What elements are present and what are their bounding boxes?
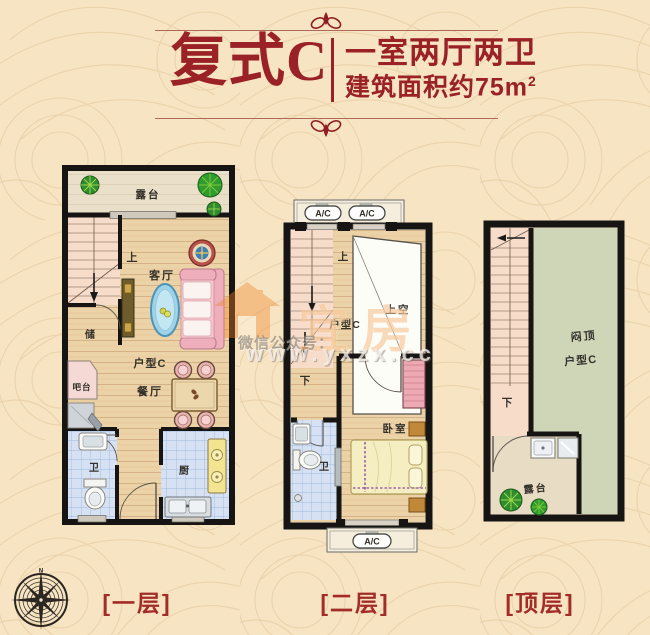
stove — [208, 439, 226, 493]
compass-north-label: N — [39, 569, 43, 575]
title-divider — [331, 38, 334, 102]
floor3-stair-down-label: 下 — [502, 397, 513, 409]
wall-clock-decor-icon — [189, 240, 215, 266]
floor2-ac-panel-bottom: A/C — [327, 528, 417, 552]
compass-rose-icon: N — [8, 566, 74, 632]
nightstand-bottom — [409, 498, 425, 512]
floor1-storage-label: 储 — [84, 328, 95, 341]
floor2-unit-label: 户型C — [328, 318, 361, 331]
floor2-caption: [二层] — [295, 584, 415, 618]
wardrobe — [403, 360, 425, 408]
ac-unit-label-3: A/C — [364, 537, 380, 547]
floor1-dining-label: 餐厅 — [136, 384, 163, 398]
rug — [151, 284, 179, 336]
floor1-caption: [一层] — [77, 584, 197, 618]
floor3-plant-right-icon — [531, 499, 547, 515]
floor3-plan: 下 闷顶 户型C 露台 — [483, 220, 625, 522]
page-title: 复式C — [170, 33, 328, 90]
floor1-terrace-label: 露台 — [136, 188, 161, 201]
floor2-stair-down-label: 下 — [300, 375, 311, 387]
bed — [351, 440, 427, 494]
floor1-plan: 露台 上 客厅 储 吧台 户型C 餐厅 卫 厨 — [62, 165, 235, 525]
floor1-bar-label: 吧台 — [72, 382, 91, 392]
floor3-caption: [顶层] — [480, 584, 600, 618]
toilet — [84, 479, 106, 509]
floor3-plant-left-icon — [500, 489, 522, 511]
area-text: 建筑面积约75m — [345, 73, 528, 101]
nightstand-top — [409, 422, 425, 436]
bedroom-sliding-door — [335, 448, 341, 486]
bathroom-sink — [79, 433, 107, 450]
area-description: 建筑面积约75m2 — [345, 74, 537, 100]
top-ornament-icon — [305, 10, 347, 30]
floor2-toilet — [293, 450, 321, 470]
floorplan-poster: 复式C 一室两厅两卫 建筑面积约75m2 — [0, 0, 650, 635]
floor2-bath-sink — [293, 424, 310, 444]
floor2-bath-label: 卫 — [319, 461, 329, 473]
floor1-hall-floor — [117, 429, 161, 519]
floor1-bath-label: 卫 — [89, 462, 99, 474]
floor2-stair-up-label: 上 — [338, 250, 349, 263]
sofa — [180, 269, 224, 349]
floor1-stair-up-label: 上 — [127, 250, 138, 264]
floor1-bath-window — [78, 516, 106, 523]
tv-cabinet — [122, 279, 134, 337]
floor1-plant-left-icon — [81, 176, 99, 194]
floor2-void-label: 上空 — [386, 303, 411, 316]
floor1-living-label: 客厅 — [148, 268, 175, 282]
layout-description: 一室两厅两卫 — [345, 37, 537, 68]
kitchen-sink — [165, 497, 211, 517]
area-superscript: 2 — [528, 73, 537, 89]
bottom-ornament-icon — [305, 119, 347, 139]
bar-counter — [68, 361, 102, 431]
terrace-appliance — [558, 438, 578, 458]
floor2-bedroom-label: 卧室 — [383, 422, 408, 435]
floor-drain-icon — [295, 495, 302, 502]
floor2-plan: A/C A/C — [283, 198, 433, 555]
ac-unit-label-1: A/C — [315, 209, 331, 219]
floor1-unit-label: 户型C — [134, 356, 167, 370]
ac-unit-label-2: A/C — [359, 209, 375, 219]
floor1-kitchen-label: 厨 — [179, 465, 189, 477]
terrace-sink — [531, 438, 555, 458]
